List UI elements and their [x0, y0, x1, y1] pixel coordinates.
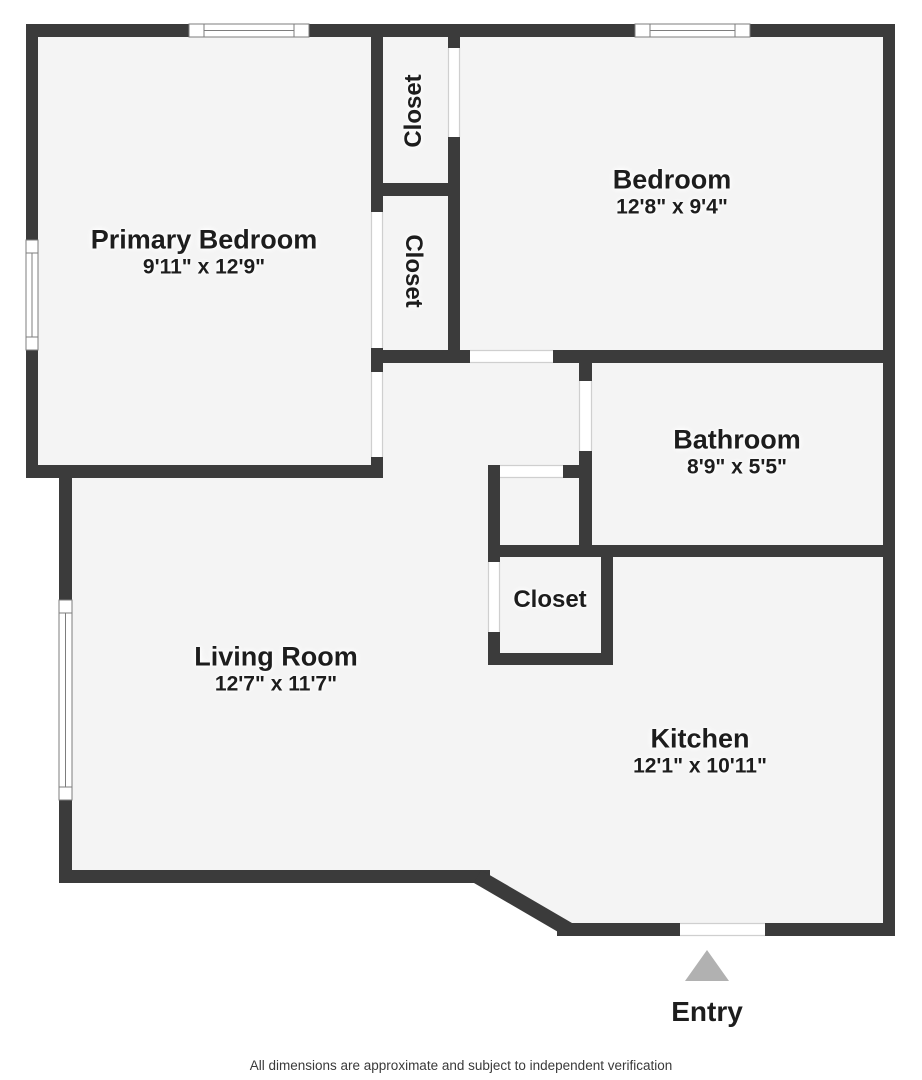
room-label-living-room: Living Room 12'7" x 11'7": [194, 641, 358, 696]
room-name: Closet: [400, 74, 428, 147]
footer-disclaimer: All dimensions are approximate and subje…: [0, 1058, 922, 1073]
wall-vestibule-top-right: [563, 465, 592, 478]
room-label-kitchen: Kitchen 12'1" x 10'11": [633, 723, 767, 778]
window-living-room-left: [59, 600, 72, 800]
wall-closets-right-upper: [448, 24, 460, 48]
wall-closets-left-lower: [371, 457, 383, 478]
wall-outer-bottom-right-a: [557, 923, 680, 936]
room-name: Closet: [513, 586, 586, 614]
room-name: Bedroom: [613, 164, 732, 195]
room-name: Closet: [399, 234, 427, 307]
room-dimensions: 12'8" x 9'4": [613, 195, 732, 219]
door-closet-top: [448, 48, 460, 137]
wall-closet-hall-bottom: [488, 653, 613, 665]
room-label-bathroom: Bathroom 8'9" x 5'5": [673, 424, 801, 479]
room-label-primary-bedroom: Primary Bedroom 9'11" x 12'9": [91, 224, 318, 279]
door-bedroom: [470, 350, 553, 363]
window-primary-bedroom-left: [26, 240, 38, 350]
entry-label: Entry: [671, 996, 743, 1028]
door-entry-opening: [680, 923, 765, 936]
door-primary-bedroom: [371, 372, 383, 457]
room-name: Primary Bedroom: [91, 224, 318, 255]
room-label-closet-hall: Closet: [513, 586, 586, 614]
room-label-closet-middle: Closet: [399, 234, 427, 307]
room-name: Kitchen: [633, 723, 767, 754]
room-name: Bathroom: [673, 424, 801, 455]
wall-outer-top: [26, 24, 895, 37]
wall-hall-top-right: [553, 350, 895, 363]
floor-plan-page: Primary Bedroom 9'11" x 12'9" Bedroom 12…: [0, 0, 922, 1080]
window-bedroom-top: [635, 24, 750, 37]
entry-triangle-up-icon: [685, 950, 729, 981]
room-name: Living Room: [194, 641, 358, 672]
floor-area: [32, 30, 889, 930]
wall-primary-bedroom-bottom: [26, 465, 383, 478]
wall-closets-right-lower: [448, 137, 460, 363]
room-label-bedroom: Bedroom 12'8" x 9'4": [613, 164, 732, 219]
wall-outer-right: [883, 24, 895, 936]
wall-bathroom-bottom: [488, 545, 895, 557]
floor-fill: [32, 30, 889, 930]
room-dimensions: 12'7" x 11'7": [194, 672, 358, 696]
window-primary-bedroom-top: [189, 24, 309, 37]
room-dimensions: 9'11" x 12'9": [91, 255, 318, 279]
wall-bathroom-left-upper: [579, 363, 592, 381]
door-closet-middle: [371, 212, 383, 348]
floor-plan-drawing: [0, 0, 922, 1080]
door-closet-hall: [488, 562, 500, 632]
room-dimensions: 8'9" x 5'5": [673, 455, 801, 479]
wall-closet-hall-right: [601, 545, 613, 665]
wall-hall-top-left: [371, 350, 470, 363]
room-dimensions: 12'1" x 10'11": [633, 754, 767, 778]
wall-closet-divider: [371, 183, 460, 196]
door-vestibule: [500, 465, 563, 478]
door-bathroom: [579, 381, 592, 451]
wall-outer-bottom-right-b: [765, 923, 895, 936]
room-label-closet-top: Closet: [400, 74, 428, 147]
wall-outer-bottom-left: [59, 870, 490, 883]
